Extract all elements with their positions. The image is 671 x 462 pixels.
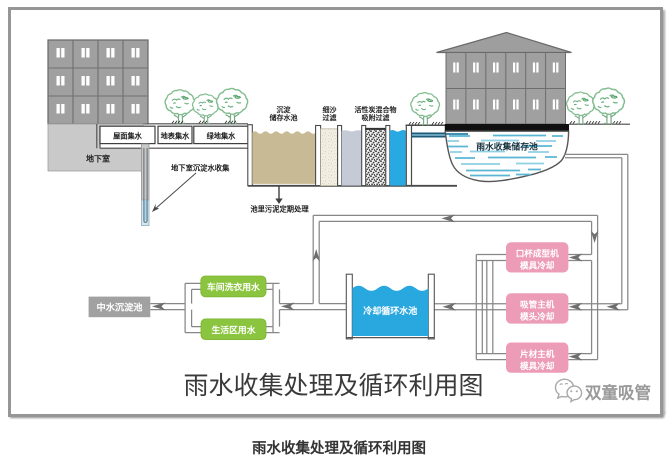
svg-text:地下室: 地下室 xyxy=(86,154,110,164)
svg-text:吸管主机: 吸管主机 xyxy=(520,299,555,310)
svg-text:活性炭混合物: 活性炭混合物 xyxy=(355,105,397,114)
svg-text:生活区用水: 生活区用水 xyxy=(212,324,256,335)
svg-text:雨水收集储存池: 雨水收集储存池 xyxy=(476,140,538,151)
svg-text:屋面集水: 屋面集水 xyxy=(113,131,143,140)
svg-text:模具冷却: 模具冷却 xyxy=(520,360,555,371)
svg-text:口杯成型机: 口杯成型机 xyxy=(516,248,559,259)
svg-text:地下室沉淀水收集: 地下室沉淀水收集 xyxy=(171,164,230,173)
svg-text:片材主机: 片材主机 xyxy=(520,348,555,359)
svg-text:池里污泥定期处理: 池里污泥定期处理 xyxy=(250,205,309,214)
svg-text:冷却循环水池: 冷却循环水池 xyxy=(363,305,417,316)
svg-text:模头冷却: 模头冷却 xyxy=(520,311,555,322)
svg-text:储存水池: 储存水池 xyxy=(269,113,298,122)
svg-text:雨水收集处理及循环利用图: 雨水收集处理及循环利用图 xyxy=(183,372,483,400)
svg-text:地表集水: 地表集水 xyxy=(161,131,191,140)
svg-text:车间洗衣用水: 车间洗衣用水 xyxy=(207,281,260,292)
svg-text:细沙: 细沙 xyxy=(323,105,337,114)
svg-text:吸附过滤: 吸附过滤 xyxy=(362,113,390,122)
svg-text:绿地集水: 绿地集水 xyxy=(207,131,237,140)
svg-text:雨水收集处理及循环利用图: 雨水收集处理及循环利用图 xyxy=(252,439,426,457)
svg-text:中水沉淀池: 中水沉淀池 xyxy=(97,302,144,313)
svg-text:模具冷却: 模具冷却 xyxy=(520,260,555,271)
svg-text:双童吸管: 双童吸管 xyxy=(585,383,651,403)
svg-text:过滤: 过滤 xyxy=(323,113,337,122)
svg-text:沉淀: 沉淀 xyxy=(277,105,292,114)
